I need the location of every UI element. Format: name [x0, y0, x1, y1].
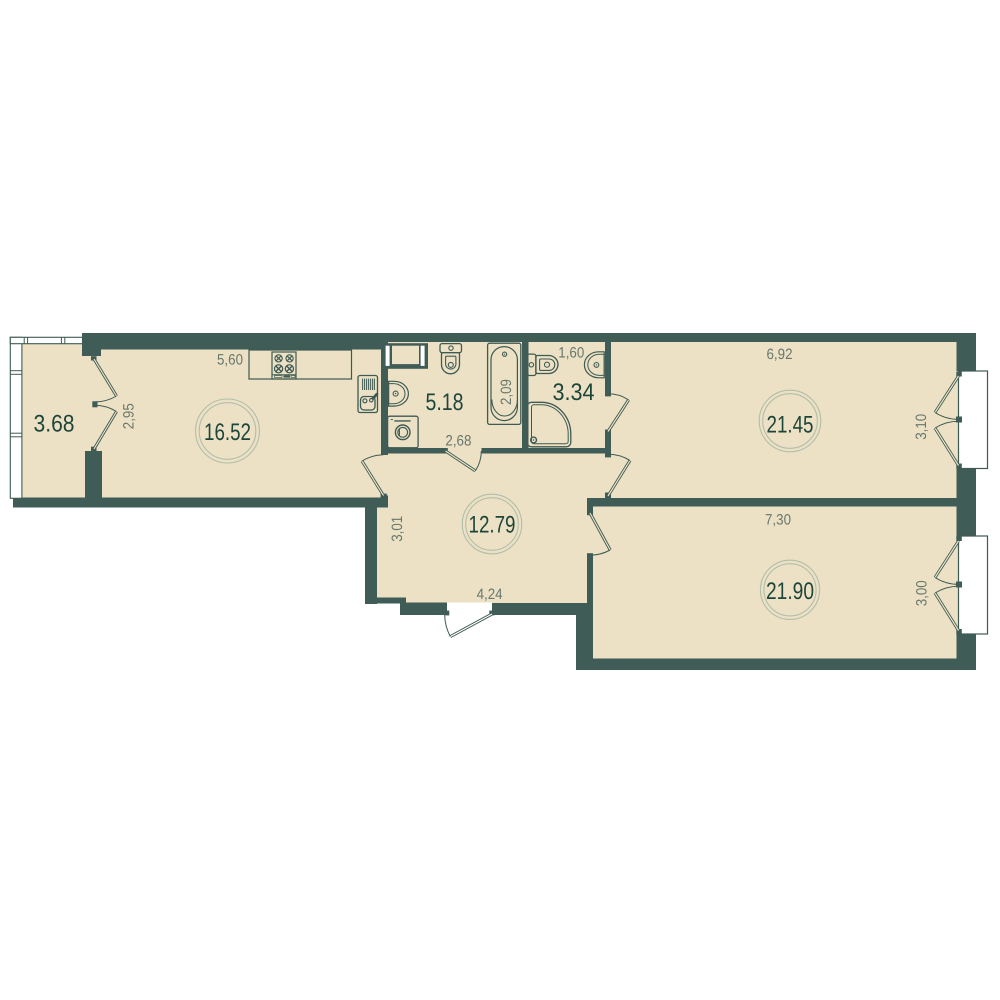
- svg-text:21.45: 21.45: [767, 412, 814, 439]
- svg-text:1,60: 1,60: [558, 345, 584, 362]
- svg-text:7,30: 7,30: [765, 512, 791, 529]
- svg-text:21.90: 21.90: [766, 578, 814, 605]
- svg-text:12.79: 12.79: [469, 512, 516, 539]
- svg-text:16.52: 16.52: [204, 419, 251, 446]
- svg-text:3,10: 3,10: [913, 414, 930, 440]
- svg-text:2,68: 2,68: [445, 433, 471, 450]
- svg-text:4,24: 4,24: [477, 586, 503, 603]
- svg-text:3,01: 3,01: [389, 516, 406, 542]
- svg-text:3.68: 3.68: [34, 411, 75, 438]
- svg-text:3.34: 3.34: [553, 379, 595, 406]
- svg-text:3,00: 3,00: [913, 580, 930, 606]
- svg-text:2,95: 2,95: [121, 403, 138, 429]
- svg-text:5,60: 5,60: [217, 352, 243, 369]
- svg-text:2,09: 2,09: [498, 379, 515, 405]
- svg-text:5.18: 5.18: [426, 389, 464, 416]
- svg-text:6,92: 6,92: [767, 346, 793, 363]
